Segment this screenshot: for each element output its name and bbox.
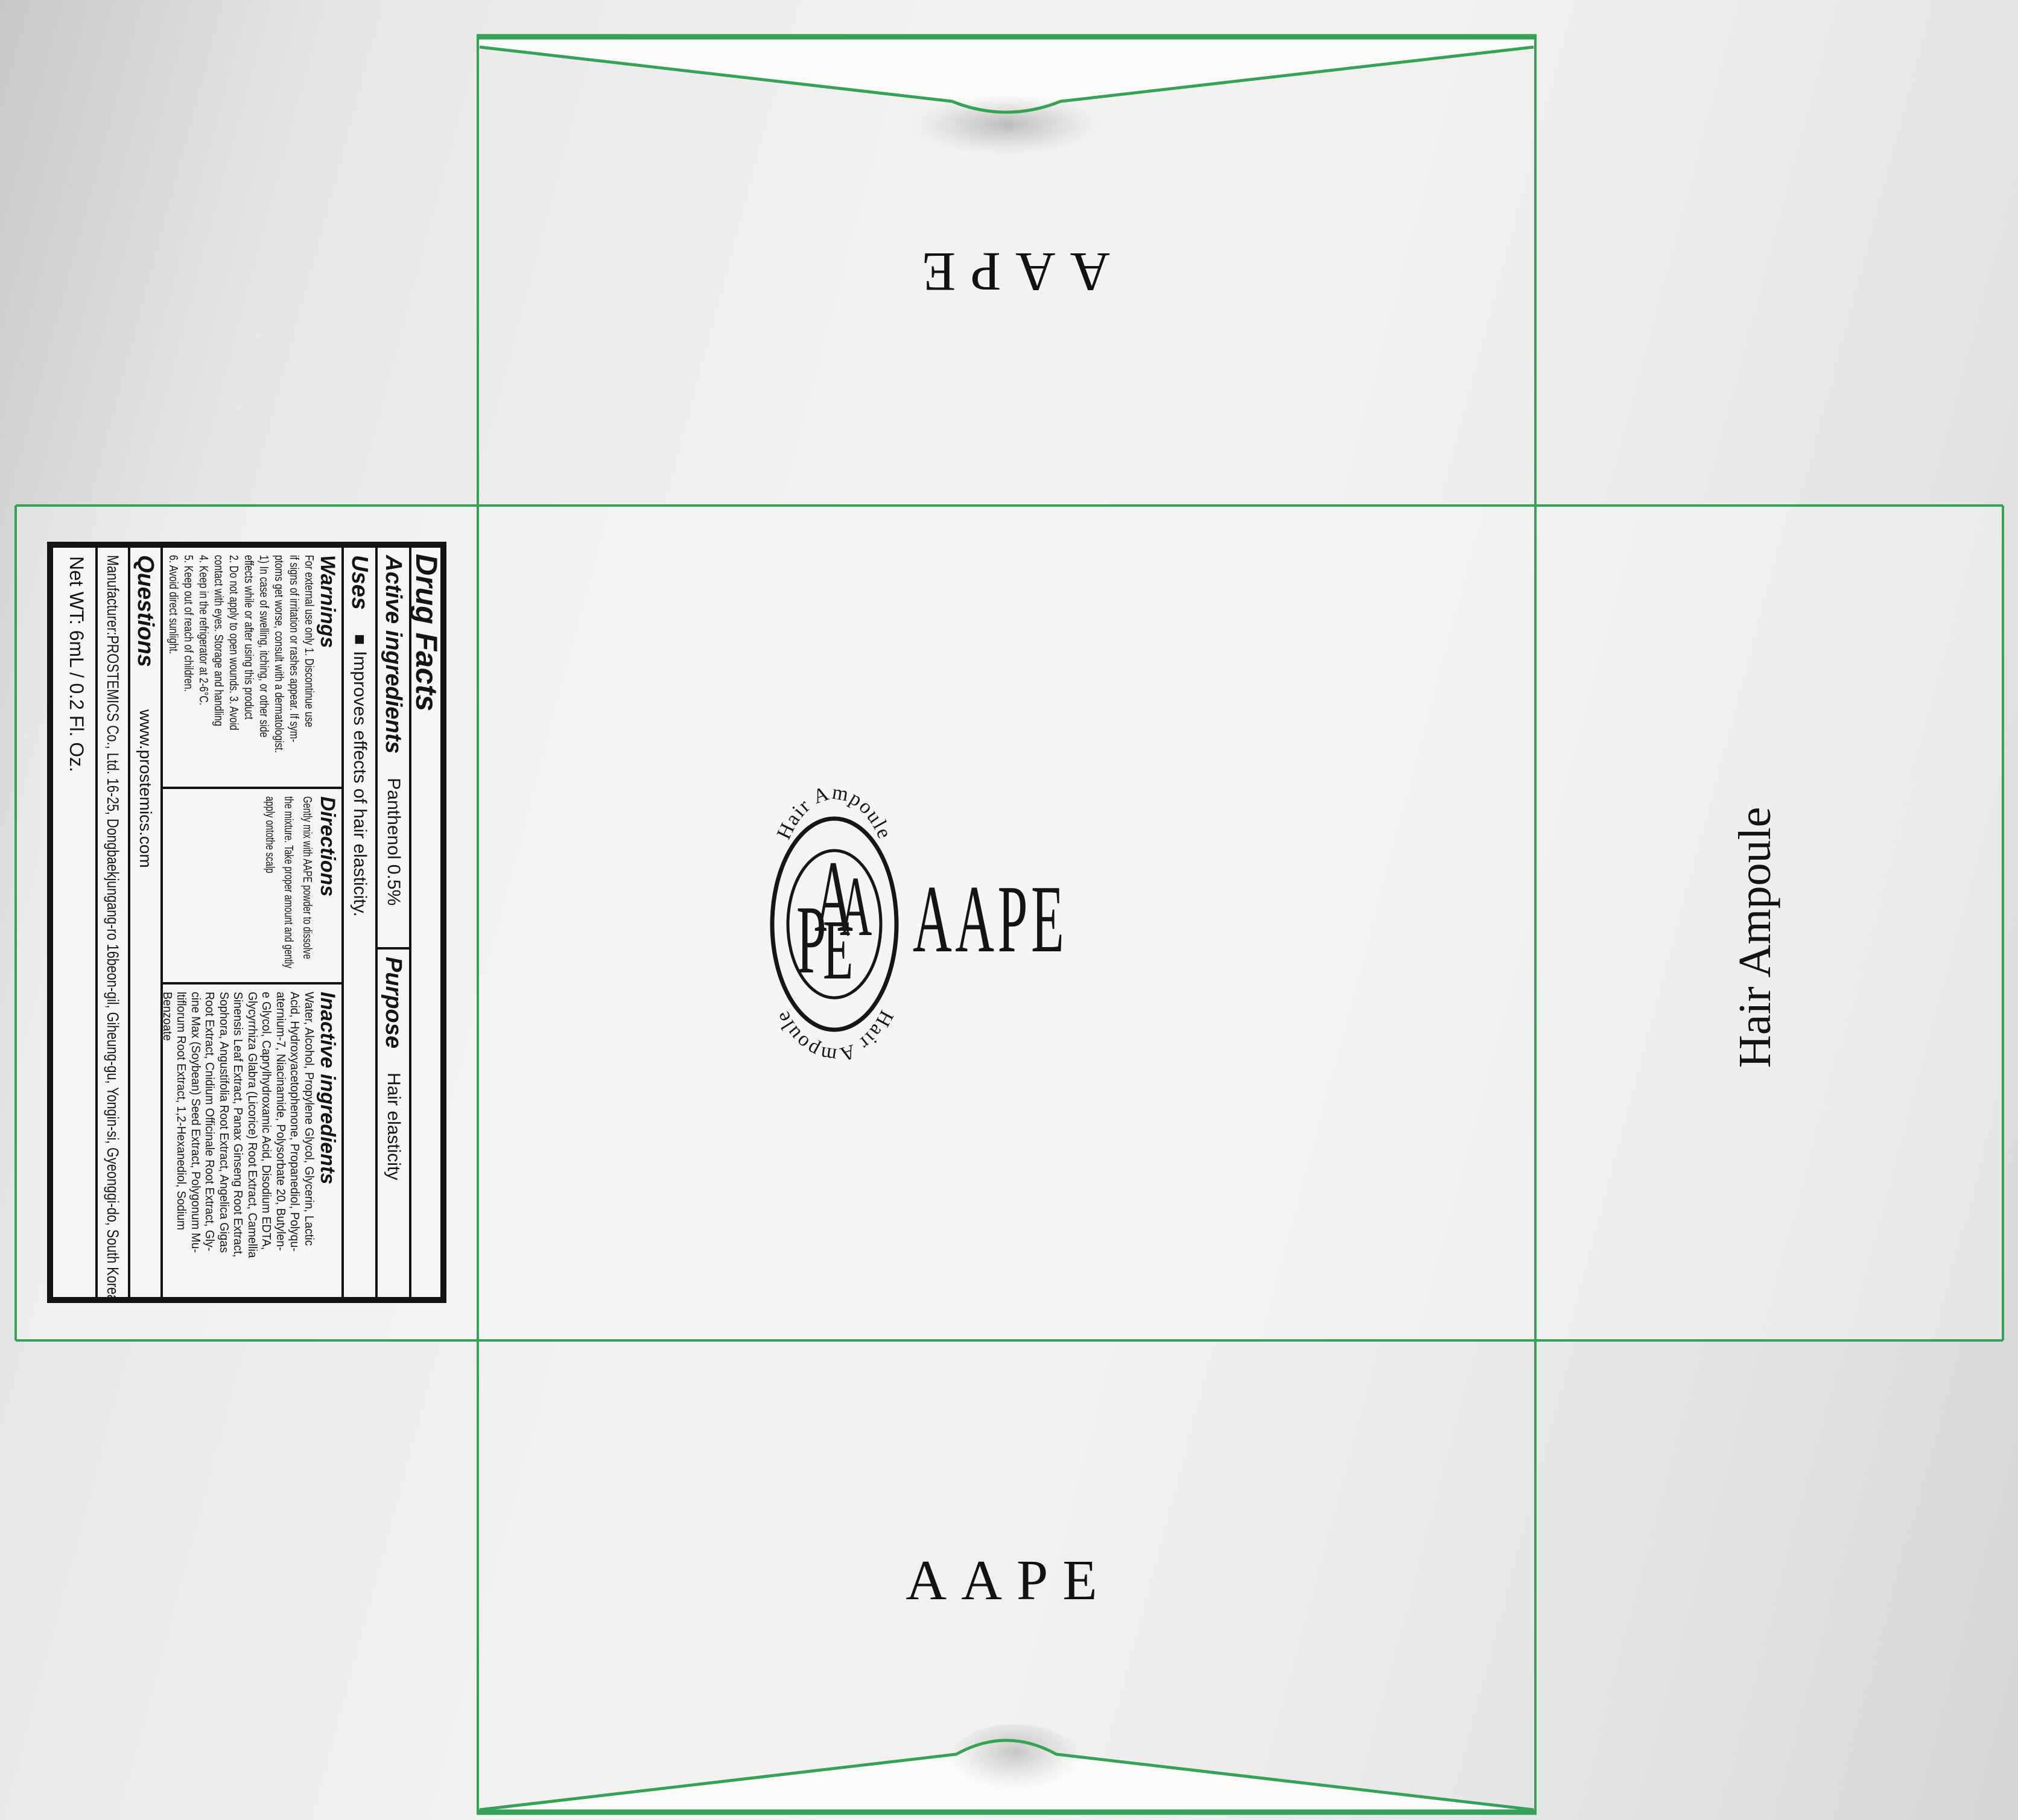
warnings-line: 6. Avoid direct sunlight. — [165, 555, 180, 781]
bottom-flap-wordmark: AAPE — [798, 1548, 1220, 1613]
inactive-line: Sinensis Leaf Extract, Panax Ginseng Roo… — [231, 992, 246, 1291]
inactive-ingredients-section: Inactive ingredients Water, Alcohol, Pro… — [163, 985, 341, 1297]
main-sections-row: Warnings For external use only 1. Discon… — [163, 548, 344, 1297]
inactive-line: ltiflorum Root Extract, 1,2-Hexanediol, … — [174, 992, 189, 1291]
warnings-line: if signs of irritation or rashes appear.… — [286, 555, 301, 781]
inactive-line: Benzoate — [163, 992, 174, 1291]
active-ingredients-value: Panthenol 0.5% — [383, 778, 404, 905]
warnings-line: ptoms get worse, consult with a dermatol… — [271, 555, 286, 781]
active-ingredients-row: Active ingredients Panthenol 0.5% Purpos… — [378, 548, 411, 1297]
side-panel: Hair Ampoule — [1727, 783, 1784, 1092]
warnings-line: contact with eyes. Storage and handling — [211, 555, 226, 781]
warnings-label: Warnings — [317, 555, 338, 781]
warnings-line: effects while or after using this produc… — [241, 555, 256, 781]
warnings-line: 1) In case of swelling, itching, or othe… — [256, 555, 271, 781]
uses-label: Uses — [347, 555, 373, 610]
brand-seal: Hair Ampoule Hair Ampoule A A P E — [771, 781, 898, 1067]
warnings-line: For external use only 1. Discontinue use — [301, 555, 316, 781]
questions-url: www.prostemics.com — [136, 709, 155, 868]
inactive-line: cine Max (Soybean) Seed Extract, Polygon… — [189, 992, 203, 1291]
front-wordmark: AAPE — [913, 866, 1067, 973]
inactive-line: e Glycol, Caprylhydroxamic Acid, Disodiu… — [259, 992, 274, 1291]
side-panel-product-name: Hair Ampoule — [1727, 783, 1784, 1092]
active-ingredients-cell: Active ingredients Panthenol 0.5% — [378, 548, 409, 950]
manufacturer-text: Manufacturer:PROSTEMICS Co., Ltd. 16-25,… — [98, 555, 128, 1297]
inactive-ingredients-label: Inactive ingredients — [317, 992, 338, 1291]
inactive-line: Sophora, Angustifolia Root Extract, Ange… — [217, 992, 232, 1291]
purpose-label: Purpose — [381, 957, 407, 1048]
inactive-line: Root Extract, Cnidium Officinale Root Ex… — [203, 992, 217, 1291]
seal-arc-top-text: Hair Ampoule — [773, 781, 896, 843]
warnings-line: 2. Do not apply to open wounds. 3. Avoid — [226, 555, 241, 781]
bottom-flap-shadow — [951, 1724, 1078, 1794]
manufacturer-row: Manufacturer:PROSTEMICS Co., Ltd. 16-25,… — [98, 548, 130, 1297]
inactive-line: aternium-7, Niacinamide, Polysorbate 20,… — [274, 992, 288, 1291]
monogram-letter-e: E — [823, 903, 853, 998]
seal-arc-bottom-text: Hair Ampoule — [771, 1007, 898, 1067]
drug-facts-panel: Drug Facts Active ingredients Panthenol … — [47, 542, 446, 1303]
directions-line: apply ontothe scalp — [260, 796, 279, 976]
warnings-line: 4. Keep in the refrigerator at 2-6°C. — [195, 555, 211, 781]
uses-value: Improves effects of hair elasticity. — [349, 651, 370, 917]
monogram-letter-p: P — [796, 886, 827, 994]
uses-row: Uses ■ Improves effects of hair elastici… — [344, 548, 378, 1297]
directions-line: the mixture. Take proper amount and gent… — [279, 796, 297, 976]
warnings-line: 5. Keep out of reach of children. — [180, 555, 195, 781]
directions-label: Directions — [317, 796, 338, 976]
warnings-section: Warnings For external use only 1. Discon… — [163, 548, 341, 789]
purpose-value: Hair elasticity — [383, 1073, 404, 1180]
net-weight-row: Net WT: 6mL / 0.2 Fl. Oz. — [56, 548, 98, 1297]
active-ingredients-label: Active ingredients — [381, 555, 407, 753]
top-flap-wordmark: AAPE — [798, 240, 1220, 304]
drug-facts-title: Drug Facts — [411, 548, 440, 1297]
questions-label: Questions — [133, 555, 159, 667]
inactive-line: Acid, Hydroxyacetophenone, Propanediol, … — [288, 992, 302, 1291]
uses-bullet: ■ — [349, 634, 370, 645]
inactive-line: Glycyrrhiza Glabra (Licorice) Root Extra… — [246, 992, 260, 1291]
drug-facts-label: Drug Facts Active ingredients Panthenol … — [47, 542, 446, 1303]
purpose-cell: Purpose Hair elasticity — [378, 950, 409, 1297]
questions-row: Questions www.prostemics.com — [130, 548, 163, 1297]
packaging-dieline: Hair Ampoule Hair Ampoule A A P E AAPE A… — [0, 0, 2018, 1820]
inactive-line: Water, Alcohol, Propylene Glycol, Glycer… — [302, 992, 317, 1291]
top-flap-shadow — [910, 97, 1103, 159]
directions-line: Gently mix with AAPE powder to dissolve — [297, 796, 316, 976]
directions-section: Directions Gently mix with AAPE powder t… — [163, 789, 341, 985]
